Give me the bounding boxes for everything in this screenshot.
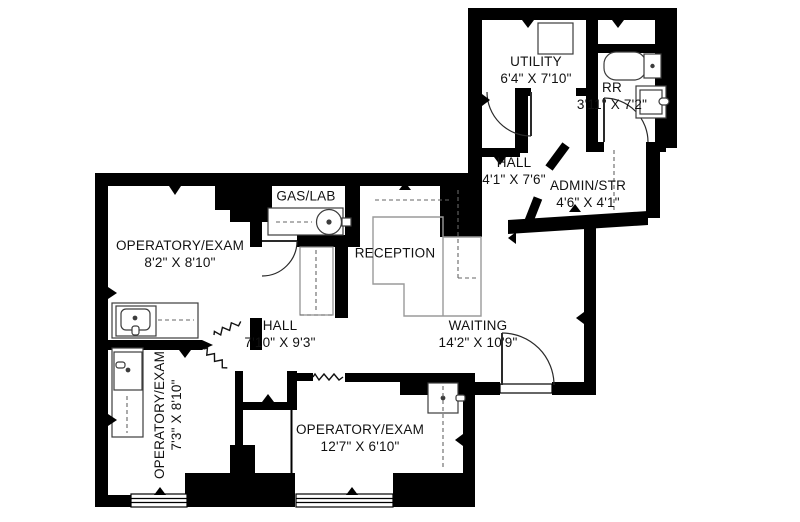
room-label-admin-storage: ADMIN/STR 4'6" X 4'1"	[550, 177, 626, 211]
room-label-utility: UTILITY 6'4" X 7'10"	[500, 53, 571, 87]
toilet-icon	[604, 52, 661, 80]
alcove-door	[262, 241, 297, 276]
room-label-gas-lab: GAS/LAB	[276, 188, 335, 205]
operatory-2-counter	[112, 348, 143, 437]
gas-lab-counter	[268, 208, 351, 235]
room-label-reception: RECEPTION	[355, 245, 436, 262]
operatory-1-counter	[112, 303, 198, 338]
room-label-hall-main: HALL 7'10" X 9'3"	[244, 317, 315, 351]
opening-zigzag	[313, 374, 343, 380]
entry-threshold	[500, 384, 552, 393]
room-label-restroom: RR 3'11" X 7'2"	[577, 79, 647, 113]
room-label-operatory-exam-1: OPERATORY/EXAM 8'2" X 8'10"	[116, 237, 244, 271]
window-left	[131, 494, 187, 507]
room-label-operatory-exam-3: OPERATORY/EXAM 12'7" X 6'10"	[296, 421, 424, 455]
room-label-waiting: WAITING 14'2" X 10'9"	[439, 317, 518, 351]
opening-zigzag	[202, 347, 229, 371]
utility-equipment-icon	[538, 23, 573, 54]
window-right	[296, 494, 393, 507]
floor-plan: UTILITY 6'4" X 7'10" RR 3'11" X 7'2" HAL…	[0, 0, 800, 522]
room-label-hall-upper: HALL 4'1" X 7'6"	[482, 154, 545, 188]
room-label-operatory-exam-2: OPERATORY/EXAM 7'3" X 8'10"	[151, 351, 185, 479]
opening-zigzag	[213, 319, 242, 338]
